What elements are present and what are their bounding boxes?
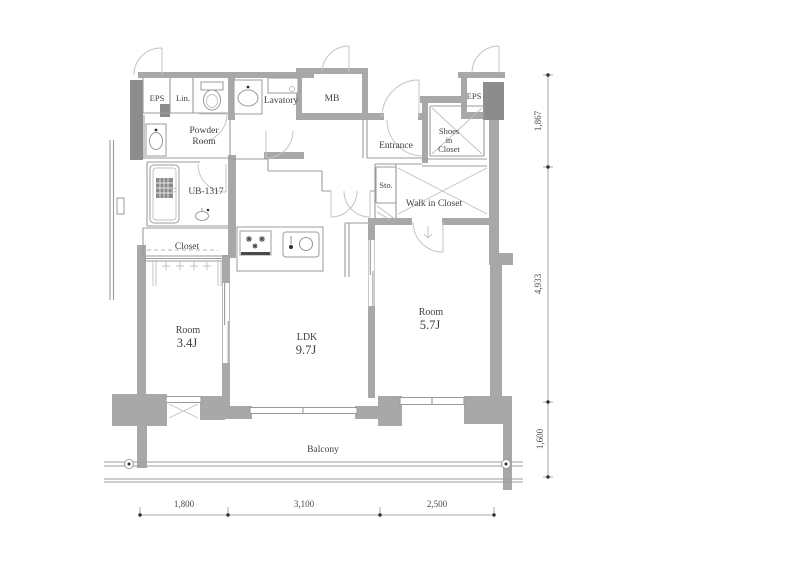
label-lavatory: Lavatory	[264, 96, 299, 106]
sliding-door-room2	[369, 240, 375, 306]
balcony-railing	[104, 460, 523, 483]
label-powder-1: Powder	[189, 126, 219, 136]
label-room1-name: Room	[176, 325, 201, 336]
label-eps-right: EPS	[467, 91, 482, 101]
label-wic: Walk in Closet	[406, 199, 463, 209]
label-ldk-name: LDK	[297, 332, 318, 343]
label-sto: Sto.	[379, 180, 392, 190]
lavatory-vanity-icon	[234, 80, 262, 114]
label-closet: Closet	[175, 242, 200, 252]
window-ldk	[250, 407, 357, 414]
floor-plan-page: EPS Lin. Lavatory MB Powder Room Entranc…	[0, 0, 800, 565]
label-entrance: Entrance	[379, 141, 413, 151]
washer-pan-icon	[268, 78, 298, 93]
window-room1	[166, 396, 201, 418]
dim-right-3: 1,600	[535, 428, 545, 449]
dim-right-1: 1,867	[533, 110, 543, 131]
dimension-right: 1,867 4,933 1,600	[533, 73, 553, 478]
kitchen-sink-icon	[283, 232, 319, 257]
toilet-icon	[201, 82, 223, 110]
label-eps-left: EPS	[150, 93, 165, 103]
dim-bottom-2: 3,100	[294, 499, 315, 509]
washbasin-icon	[146, 124, 166, 156]
label-room2-size: 5.7J	[420, 318, 441, 332]
stove-icon	[240, 231, 271, 255]
label-room2-name: Room	[419, 307, 444, 318]
label-ub: UB-1317	[188, 187, 224, 197]
label-ldk-size: 9.7J	[296, 343, 317, 357]
dimension-bottom: 1,800 3,100 2,500	[138, 499, 495, 517]
label-powder-2: Room	[192, 137, 216, 147]
window-room2	[400, 397, 464, 405]
bathtub-icon	[150, 165, 179, 223]
label-linen: Lin.	[176, 93, 190, 103]
label-shoes-3: Closet	[438, 144, 460, 154]
dim-bottom-3: 2,500	[427, 499, 448, 509]
floor-plan-canvas: EPS Lin. Lavatory MB Powder Room Entranc…	[0, 0, 800, 565]
label-balcony: Balcony	[307, 445, 339, 455]
bath-sink-icon	[196, 208, 210, 221]
label-room1-size: 3.4J	[177, 336, 198, 350]
label-mb: MB	[325, 94, 340, 104]
dim-right-2: 4,933	[533, 273, 543, 294]
closet-hanger-icons	[153, 260, 221, 286]
sliding-door-room1	[223, 283, 229, 363]
dim-bottom-1: 1,800	[174, 499, 195, 509]
